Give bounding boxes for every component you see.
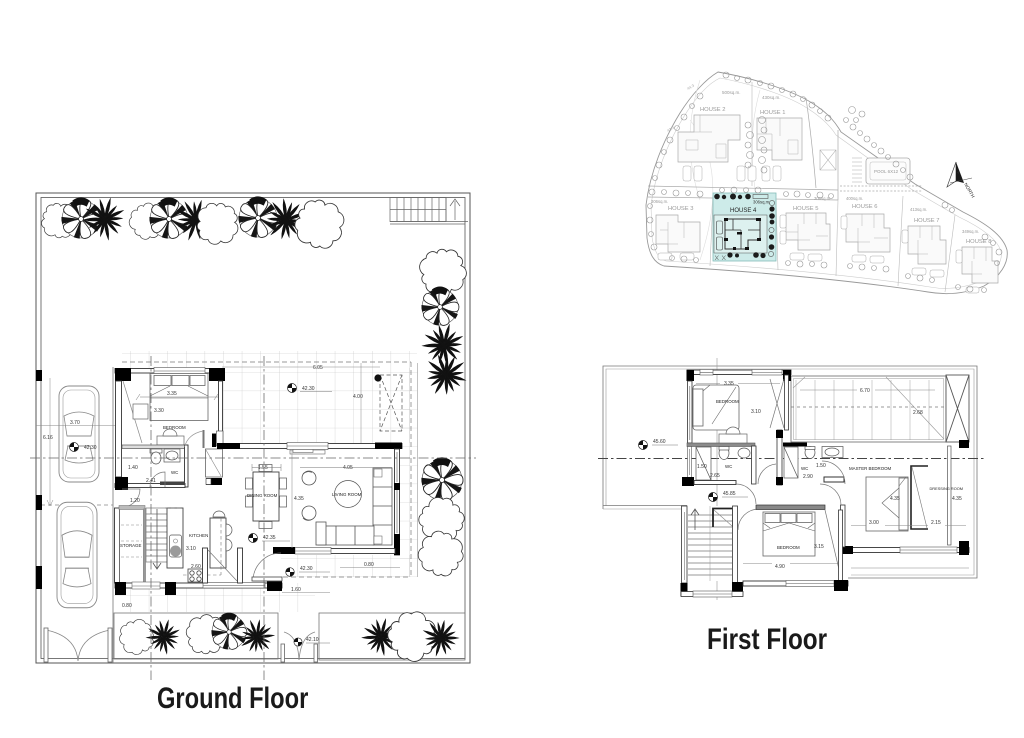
svg-text:WC: WC: [725, 464, 732, 469]
svg-text:DRESSING ROOM: DRESSING ROOM: [930, 486, 964, 491]
svg-text:HOUSE 8: HOUSE 8: [966, 239, 991, 245]
svg-text:0.80: 0.80: [364, 562, 374, 568]
svg-text:BEDROOM: BEDROOM: [777, 545, 800, 550]
svg-text:LIVING ROOM: LIVING ROOM: [332, 492, 362, 497]
svg-text:1.40: 1.40: [128, 465, 138, 471]
svg-text:2.15: 2.15: [931, 520, 941, 526]
svg-text:6.16: 6.16: [43, 435, 53, 441]
svg-text:1.60: 1.60: [291, 587, 301, 593]
svg-text:42.30: 42.30: [84, 445, 97, 451]
svg-text:WC: WC: [801, 466, 808, 471]
svg-text:1.55: 1.55: [258, 465, 268, 471]
svg-text:400sq.m.: 400sq.m.: [846, 196, 863, 201]
svg-text:42.35: 42.35: [263, 535, 276, 541]
svg-text:STORAGE: STORAGE: [120, 543, 141, 548]
svg-text:3.10: 3.10: [751, 409, 761, 415]
svg-text:413sq.m.: 413sq.m.: [910, 207, 927, 212]
svg-text:HOUSE 1: HOUSE 1: [760, 110, 785, 116]
svg-text:HOUSE 7: HOUSE 7: [914, 218, 939, 224]
svg-text:BEDROOM: BEDROOM: [163, 425, 186, 430]
svg-text:4.90: 4.90: [775, 564, 785, 570]
svg-text:6.70: 6.70: [860, 388, 870, 394]
svg-text:2.68: 2.68: [913, 410, 923, 416]
svg-text:4.35: 4.35: [952, 496, 962, 502]
svg-text:HOUSE 3: HOUSE 3: [668, 206, 693, 212]
svg-text:42.30: 42.30: [300, 566, 313, 572]
svg-text:0.80: 0.80: [122, 603, 132, 609]
svg-text:6.05: 6.05: [313, 365, 323, 371]
svg-text:306sq,m,: 306sq,m,: [753, 200, 770, 205]
svg-text:306sq.m.: 306sq.m.: [651, 199, 668, 204]
svg-text:HOUSE 5: HOUSE 5: [793, 206, 818, 212]
svg-text:Ground Floor: Ground Floor: [157, 681, 309, 714]
svg-text:1.20: 1.20: [130, 498, 140, 504]
svg-text:3.10: 3.10: [186, 546, 196, 552]
svg-text:500sq.m.: 500sq.m.: [722, 90, 741, 95]
svg-text:4.00: 4.00: [353, 394, 363, 400]
svg-text:POOL 6X12: POOL 6X12: [874, 169, 899, 174]
svg-text:4.35: 4.35: [294, 496, 304, 502]
svg-text:BEDROOM: BEDROOM: [716, 399, 739, 404]
svg-text:2.65: 2.65: [710, 473, 720, 479]
svg-text:430sq.m.: 430sq.m.: [762, 95, 781, 100]
svg-text:3.15: 3.15: [814, 544, 824, 550]
svg-text:42.10: 42.10: [306, 637, 319, 643]
svg-text:1.50: 1.50: [697, 464, 707, 470]
svg-text:DINING ROOM: DINING ROOM: [247, 493, 278, 498]
svg-text:3.35: 3.35: [167, 391, 177, 397]
svg-text:HOUSE 4: HOUSE 4: [730, 208, 757, 214]
svg-text:WC: WC: [171, 470, 178, 475]
svg-text:349sq.m.: 349sq.m.: [962, 229, 979, 234]
svg-text:2.90: 2.90: [803, 474, 813, 480]
svg-text:4.05: 4.05: [343, 465, 353, 471]
svg-text:1.50: 1.50: [816, 463, 826, 469]
svg-text:45.85: 45.85: [723, 491, 736, 497]
svg-text:45.60: 45.60: [653, 439, 666, 445]
svg-text:4.35: 4.35: [890, 496, 900, 502]
svg-text:First Floor: First Floor: [707, 622, 827, 656]
svg-text:42.30: 42.30: [302, 386, 315, 392]
svg-text:MASTER BEDROOM: MASTER BEDROOM: [849, 466, 892, 471]
svg-text:3.00: 3.00: [869, 520, 879, 526]
svg-text:3.30: 3.30: [154, 408, 164, 414]
svg-text:HOUSE 2: HOUSE 2: [700, 107, 725, 113]
svg-text:HOUSE 6: HOUSE 6: [852, 204, 877, 210]
svg-text:3.35: 3.35: [724, 381, 734, 387]
svg-text:KITCHEN: KITCHEN: [189, 533, 208, 538]
svg-text:3.70: 3.70: [70, 420, 80, 426]
